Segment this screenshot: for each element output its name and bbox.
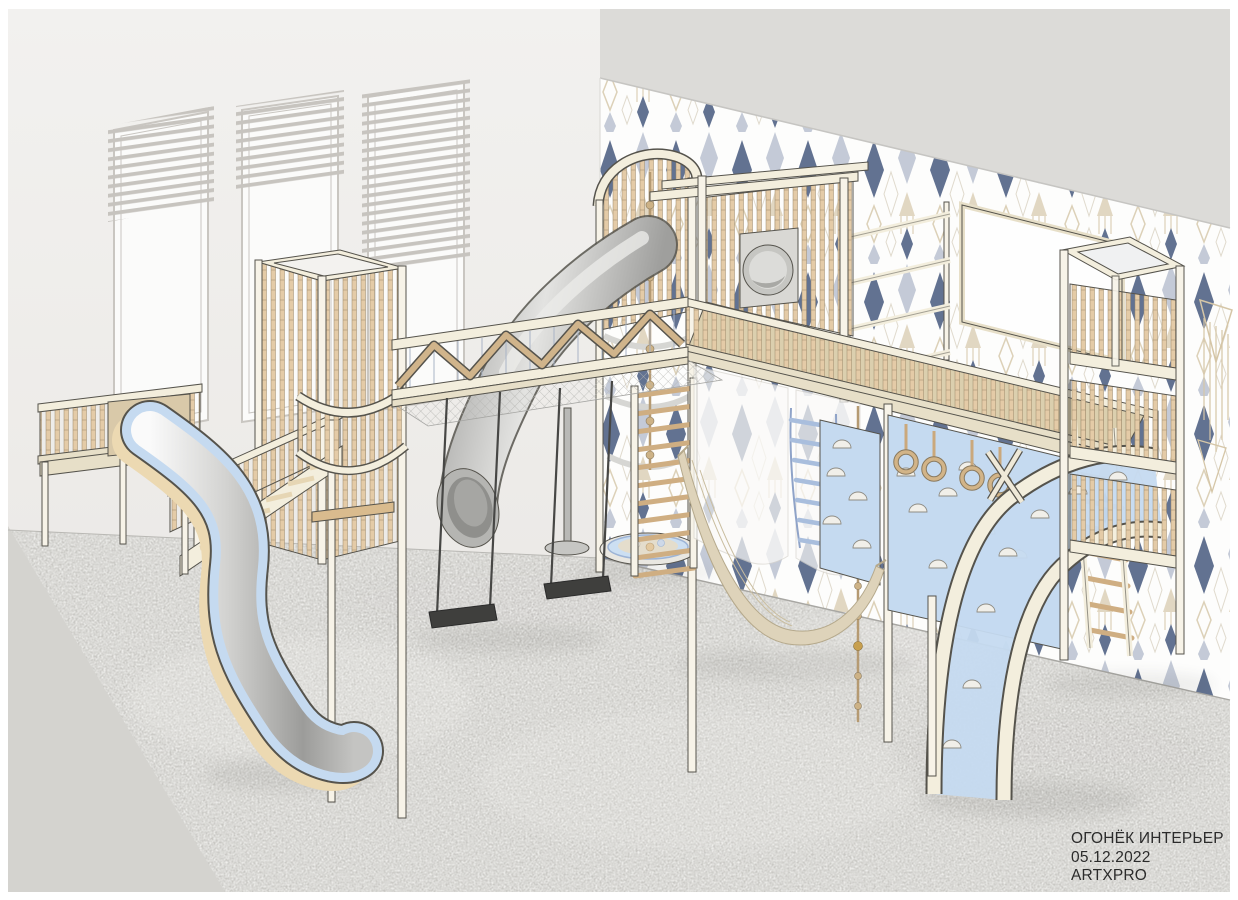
project-author: ARTXPRO xyxy=(1071,867,1224,886)
arch-support-post xyxy=(928,596,936,776)
window-1-blinds xyxy=(108,106,214,222)
window-3-blinds xyxy=(362,76,470,275)
render-page: ОГОНЁК ИНТЕРЬЕР 05.12.2022 ARTXPRO xyxy=(0,0,1238,900)
window-2-blinds xyxy=(236,90,344,192)
project-date: 05.12.2022 xyxy=(1071,849,1224,868)
porthole-entry xyxy=(740,228,798,308)
title-block: ОГОНЁК ИНТЕРЬЕР 05.12.2022 ARTXPRO xyxy=(1071,830,1224,886)
climbing-wall-left xyxy=(820,420,880,585)
project-title: ОГОНЁК ИНТЕРЬЕР xyxy=(1071,830,1224,849)
tube-support-pole xyxy=(564,408,571,546)
playroom-render-canvas xyxy=(0,0,1238,900)
